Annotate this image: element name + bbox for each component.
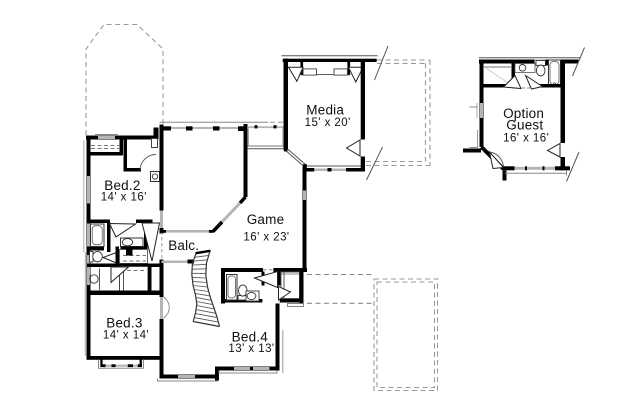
svg-text:15' x 20': 15' x 20' — [305, 117, 351, 129]
svg-text:13' x 13': 13' x 13' — [228, 343, 274, 355]
svg-text:16' x 23': 16' x 23' — [243, 232, 289, 244]
svg-text:14' x 14': 14' x 14' — [103, 329, 149, 341]
svg-text:Balc.: Balc. — [168, 238, 199, 253]
svg-text:Media: Media — [306, 102, 344, 117]
svg-text:Game: Game — [247, 212, 285, 227]
svg-text:Bed.3: Bed.3 — [106, 316, 142, 331]
svg-text:Guest: Guest — [506, 118, 543, 133]
svg-text:14' x 16': 14' x 16' — [101, 192, 147, 204]
svg-text:16' x 16': 16' x 16' — [503, 133, 549, 145]
